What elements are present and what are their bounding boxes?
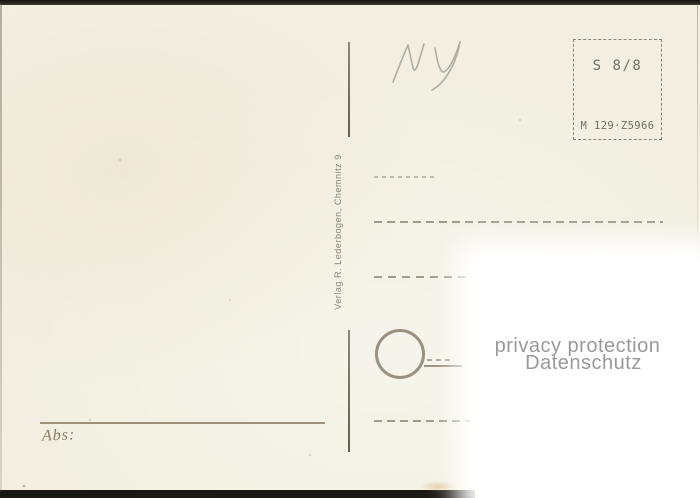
address-guide-line [374,221,663,223]
scanned-postcard-image: Verlag R. Lederbogen, Chemnitz 9 S 8/8 M… [0,0,700,498]
privacy-watermark-line2: Datenschutz [455,355,700,372]
sender-line [40,422,325,424]
postmark-circle [375,329,425,379]
publisher-imprint: Verlag R. Lederbogen, Chemnitz 9 [333,137,347,327]
scan-edge-top [0,0,700,5]
stamp-box: S 8/8 M 129·Z5966 [573,39,662,140]
stamp-box-catalog-code: M 129·Z5966 [574,120,661,132]
privacy-watermark: privacy protection Datenschutz [455,338,700,371]
sender-label: Abs: [42,426,76,445]
address-guide-line-short [427,359,450,361]
scan-edge-right [697,4,699,294]
address-guide-line [374,176,438,178]
postcard-back: Verlag R. Lederbogen, Chemnitz 9 S 8/8 M… [0,0,700,498]
divider-line-top [348,42,350,137]
scan-edge-left [0,4,2,492]
handwritten-initials [385,30,480,95]
stamp-box-value-code: S 8/8 [574,58,661,74]
address-guide-line [374,420,470,422]
address-guide-line [374,276,470,278]
age-smudge [420,481,458,492]
divider-line-bottom [348,330,350,452]
privacy-overlay [475,258,700,498]
